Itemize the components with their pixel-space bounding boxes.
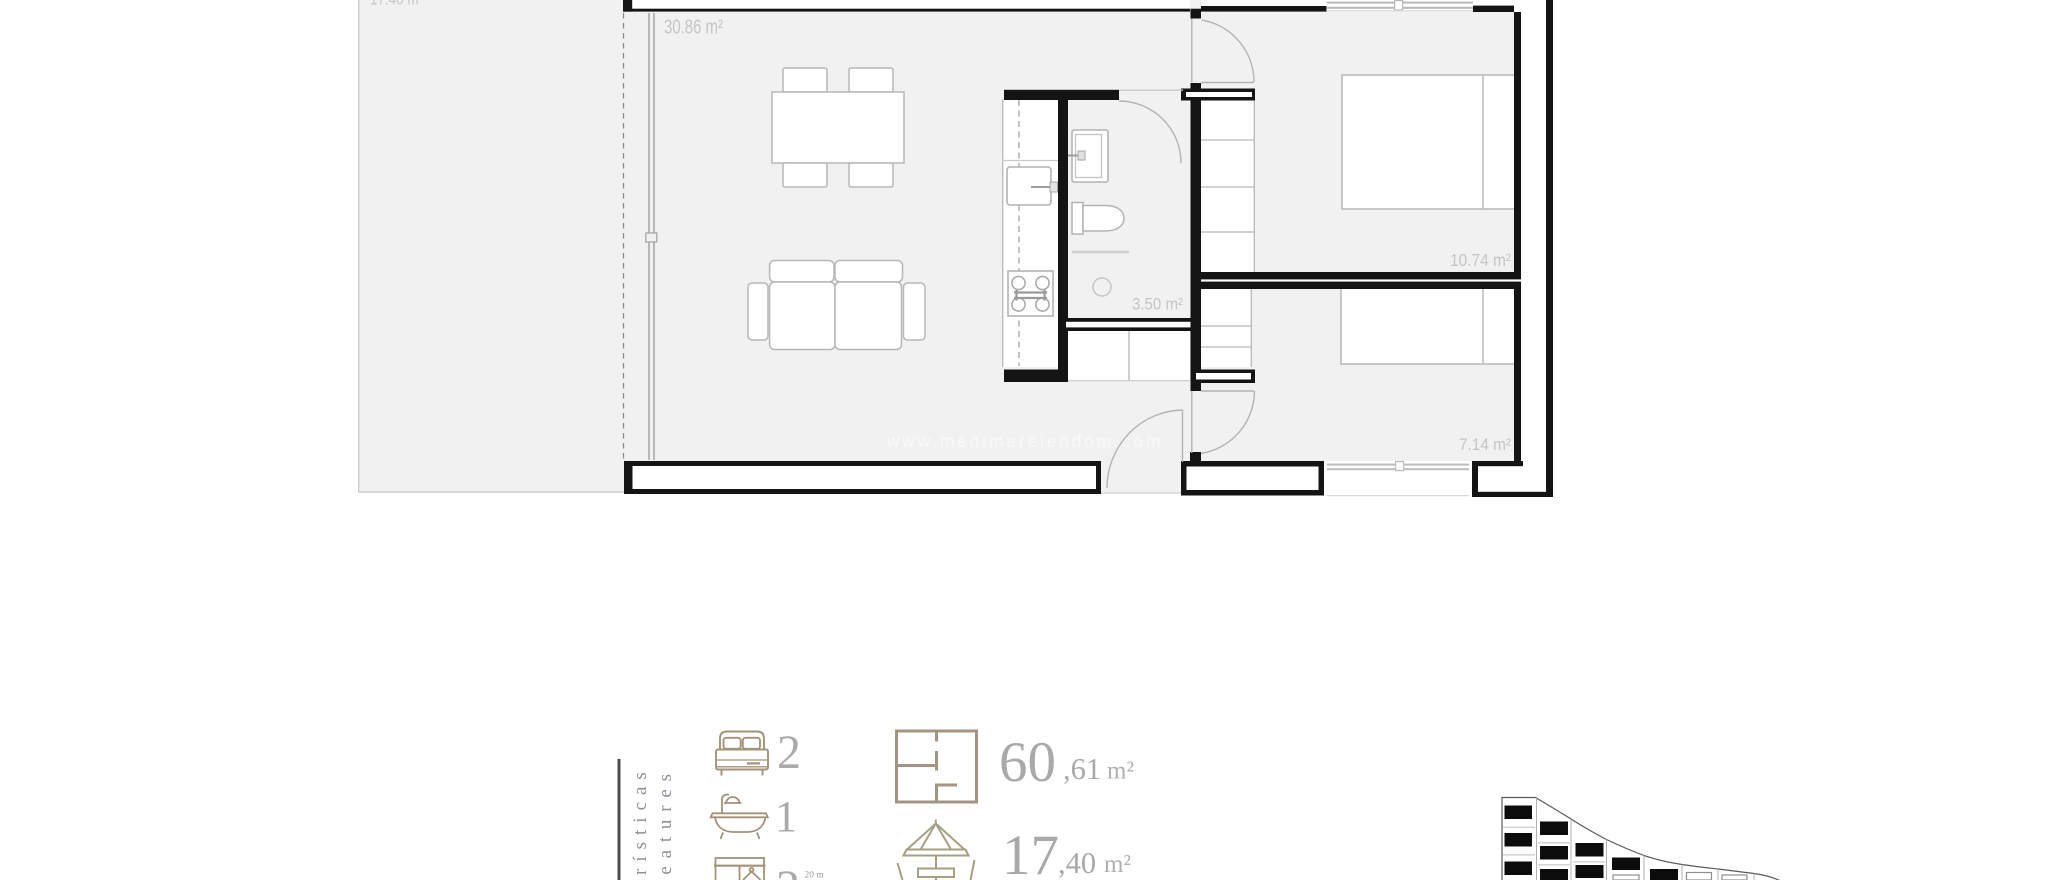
svg-text:17.40 m²: 17.40 m² <box>370 0 423 9</box>
svg-text:3.50 m²: 3.50 m² <box>1132 296 1183 314</box>
svg-text:,61: ,61 <box>1063 752 1101 786</box>
svg-text:30.86 m²: 30.86 m² <box>664 17 723 39</box>
svg-text:m²: m² <box>1104 851 1131 878</box>
svg-text:2: 2 <box>776 861 800 880</box>
svg-text:17: 17 <box>1002 824 1059 880</box>
svg-text:7.14 m²: 7.14 m² <box>1459 435 1511 454</box>
svg-text:m²: m² <box>1107 758 1134 785</box>
svg-text:20 m: 20 m <box>805 871 825 880</box>
svg-text:,40: ,40 <box>1058 846 1096 880</box>
svg-text:10.74 m²: 10.74 m² <box>1450 250 1511 270</box>
svg-text:1: 1 <box>775 792 797 841</box>
svg-text:Features: Features <box>655 766 676 880</box>
svg-text:2: 2 <box>777 726 801 779</box>
svg-text:Características: Características <box>630 765 651 880</box>
svg-text:60: 60 <box>999 731 1056 794</box>
